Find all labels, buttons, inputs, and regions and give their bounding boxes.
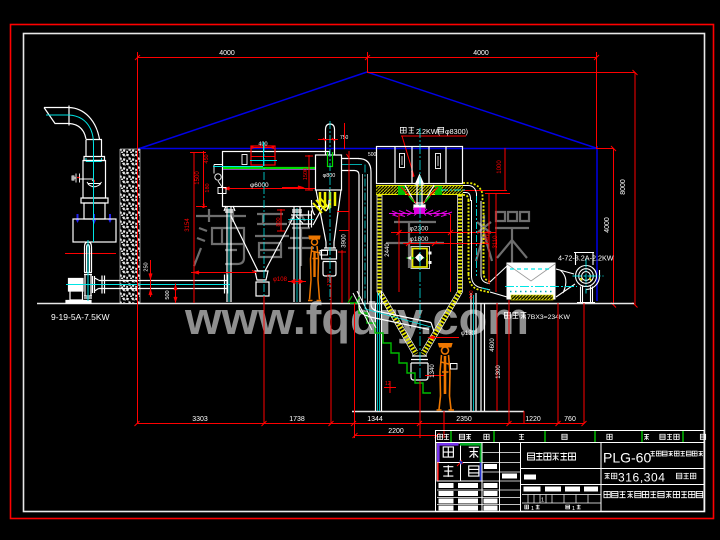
svg-text:3110: 3110	[493, 235, 499, 249]
svg-text:3303: 3303	[192, 416, 208, 423]
svg-text:440: 440	[469, 290, 475, 299]
svg-text:φ6000: φ6000	[250, 182, 269, 189]
svg-text:4000: 4000	[219, 50, 235, 57]
svg-text:1344: 1344	[367, 416, 383, 423]
svg-text:4-72-3.2A-2.2KW: 4-72-3.2A-2.2KW	[558, 254, 614, 263]
svg-text:500: 500	[368, 152, 377, 158]
svg-text:8000: 8000	[620, 179, 627, 195]
svg-text:1500: 1500	[303, 168, 309, 180]
svg-text:450: 450	[204, 154, 210, 163]
svg-text:9-19-5A-7.5KW: 9-19-5A-7.5KW	[51, 312, 110, 322]
svg-text:1000: 1000	[497, 160, 503, 174]
svg-text:φ8300): φ8300)	[445, 127, 468, 136]
svg-text:φ1800: φ1800	[410, 236, 429, 243]
svg-text:2460: 2460	[485, 231, 491, 245]
svg-text:2200: 2200	[388, 428, 404, 435]
svg-text:12: 12	[385, 381, 391, 387]
svg-text:1738: 1738	[289, 416, 305, 423]
svg-text:2440: 2440	[385, 243, 391, 257]
svg-text:1300: 1300	[496, 365, 502, 379]
svg-text:316,304: 316,304	[618, 471, 666, 485]
svg-text:180: 180	[205, 183, 211, 192]
svg-text:φ800: φ800	[323, 173, 336, 179]
svg-text:3900: 3900	[342, 234, 348, 248]
svg-text:3154: 3154	[185, 218, 191, 232]
svg-text:PLG-60: PLG-60	[603, 450, 651, 466]
svg-text:4000: 4000	[473, 50, 489, 57]
svg-text:4000: 4000	[604, 217, 611, 233]
svg-text:1220: 1220	[525, 416, 541, 423]
svg-text:250: 250	[144, 262, 150, 271]
svg-text:800: 800	[276, 217, 282, 226]
svg-text:φ2300: φ2300	[410, 226, 429, 233]
svg-text:500: 500	[165, 290, 171, 299]
svg-text:φ108: φ108	[273, 277, 288, 283]
svg-text:1: 1	[572, 506, 575, 512]
svg-text:1500: 1500	[195, 171, 201, 185]
svg-text:1: 1	[531, 506, 534, 512]
svg-text:4600: 4600	[490, 338, 496, 352]
svg-text:760: 760	[564, 416, 576, 423]
svg-text:1340: 1340	[430, 364, 436, 378]
svg-text:7BX3=234KW: 7BX3=234KW	[527, 314, 570, 321]
svg-text:2350: 2350	[456, 416, 472, 423]
svg-text:1: 1	[541, 498, 544, 504]
